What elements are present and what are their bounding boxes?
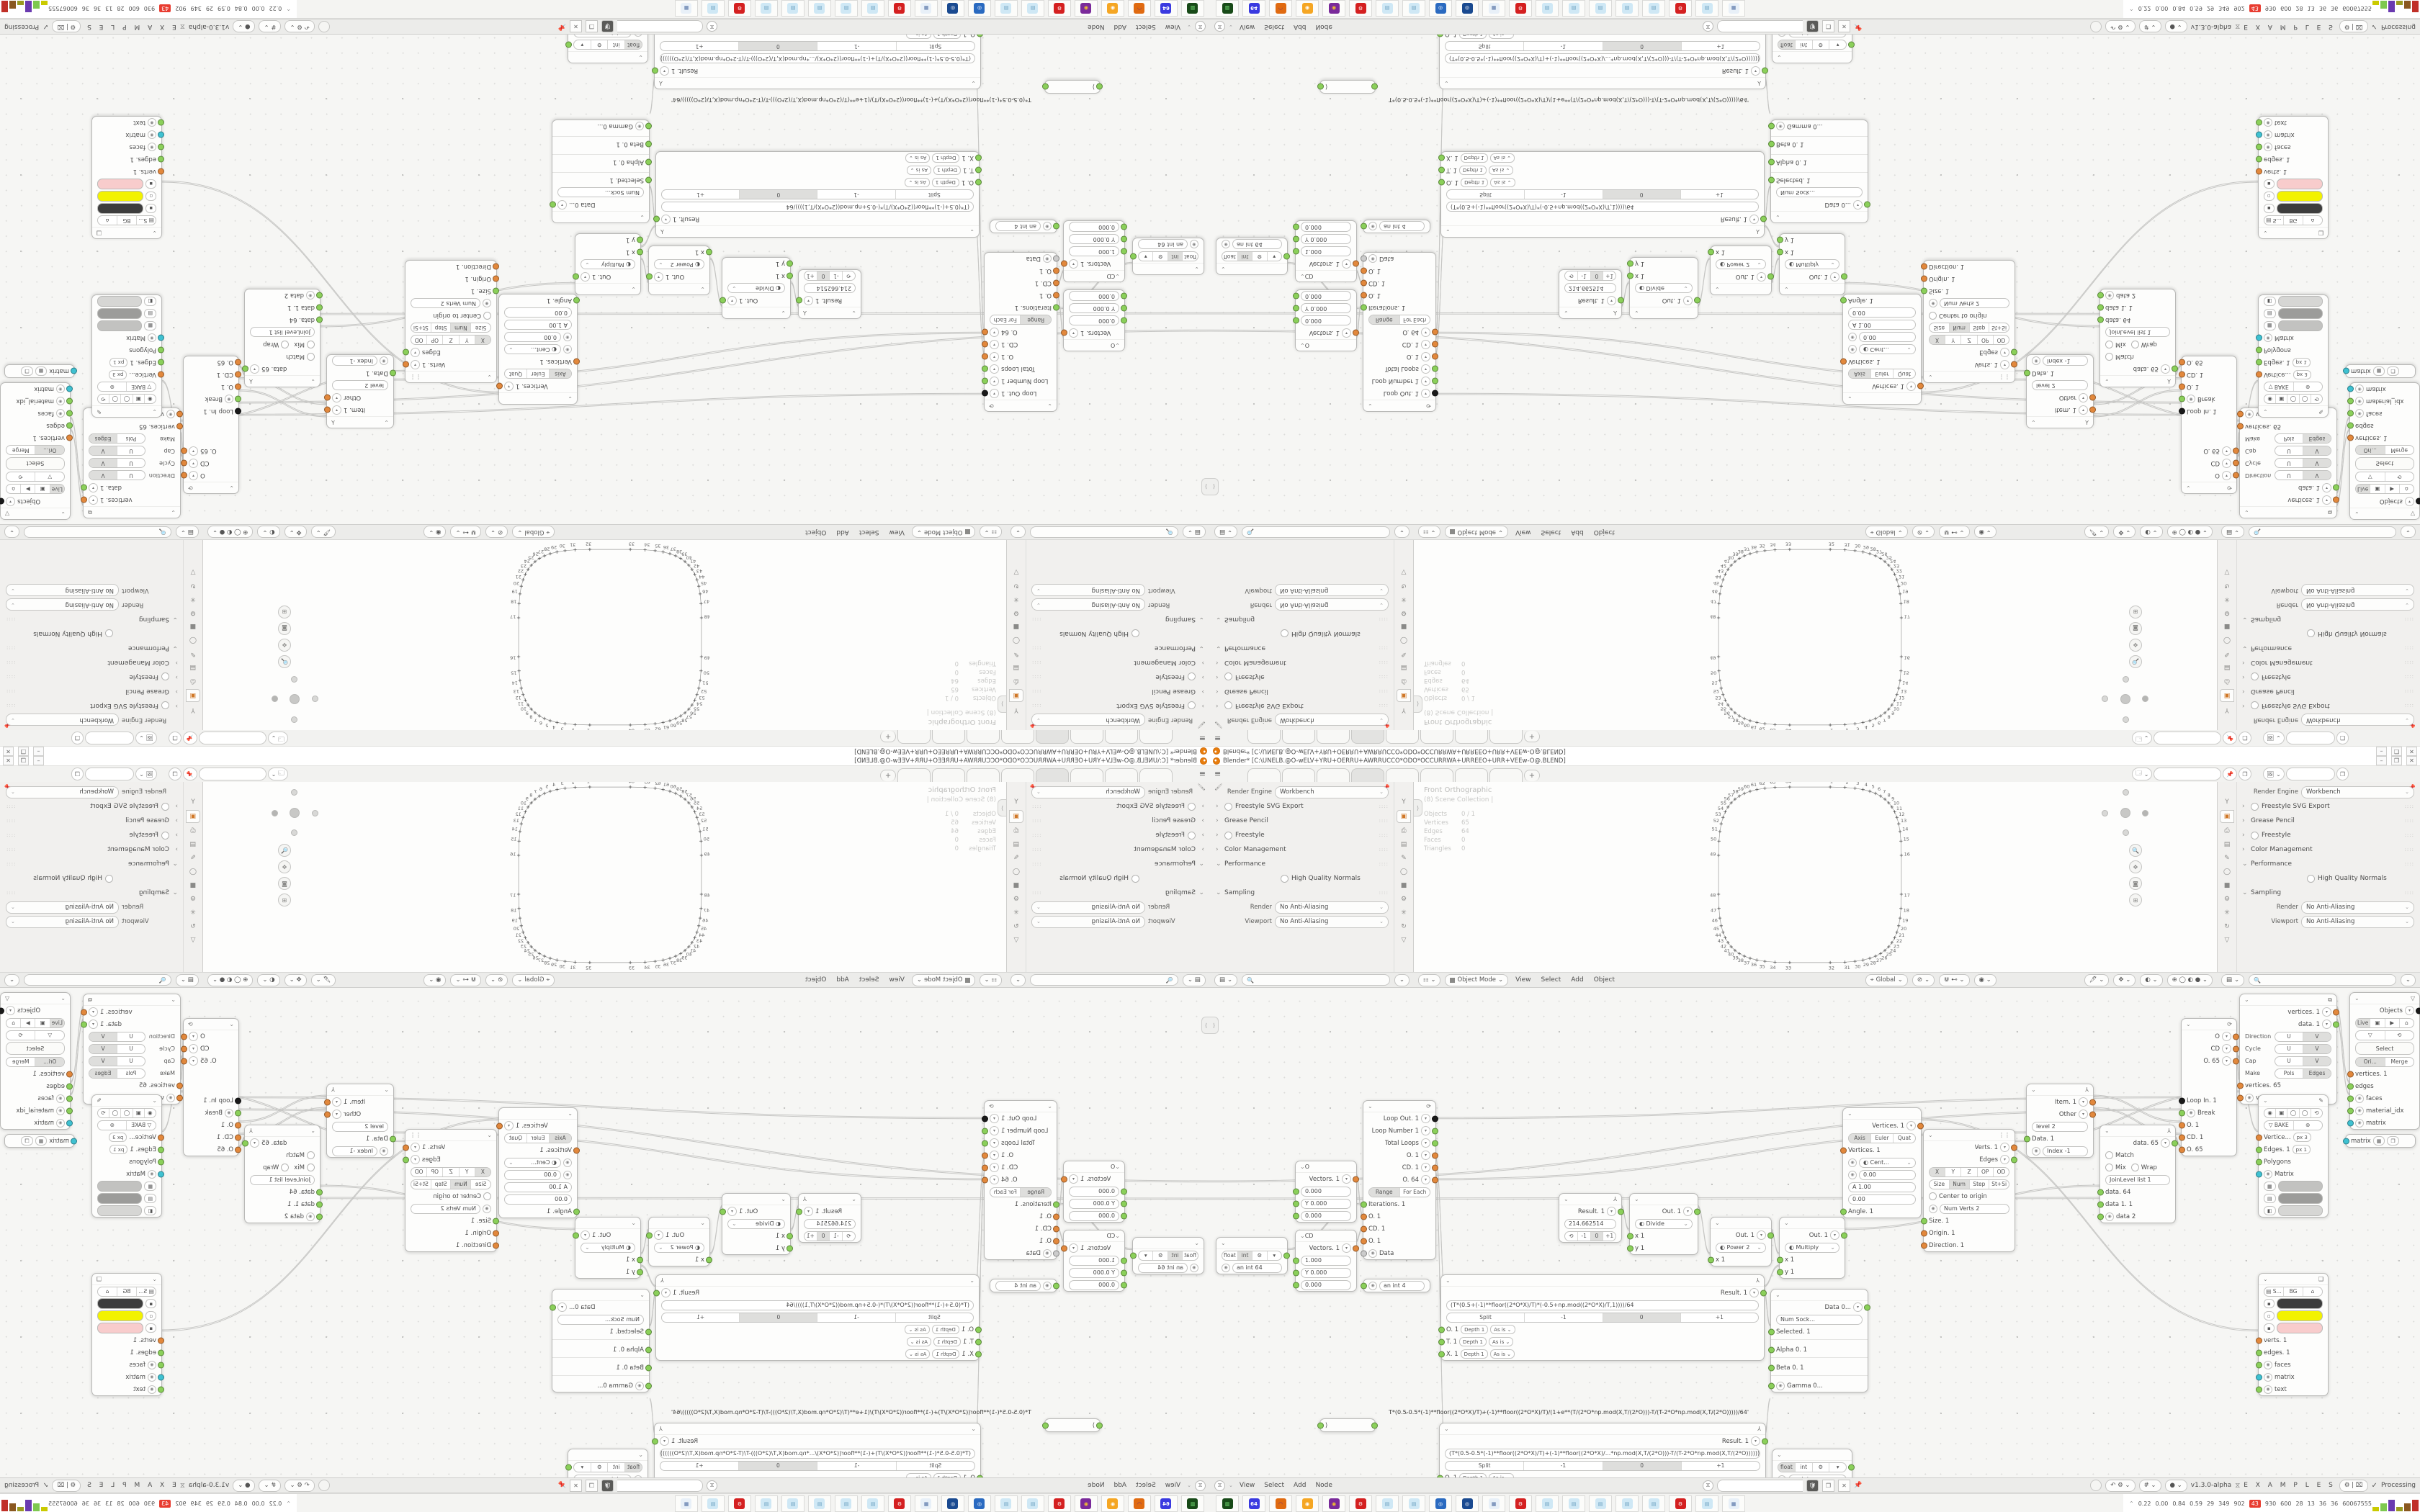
socket[interactable]	[1438, 1326, 1445, 1333]
node-math-power[interactable]: ⌄Out. 1▾◐ Power 2⌄x 1	[1710, 1217, 1772, 1266]
xray-toggle[interactable]: ◐ ⌄	[257, 974, 279, 986]
node-title-bar[interactable]: ⌄▽	[2350, 508, 2419, 519]
node-title-bar[interactable]: ⌄▽	[2350, 993, 2419, 1004]
expand-socket-button[interactable]: ◉	[2264, 1361, 2272, 1369]
socket[interactable]	[2233, 472, 2239, 479]
value-field[interactable]: 0.00	[1848, 1194, 1916, 1205]
swatch-button[interactable]: ▪	[2264, 204, 2275, 213]
section-chevron-icon[interactable]: ⌄	[172, 644, 178, 652]
socket[interactable]	[982, 329, 988, 336]
sub-field[interactable]: ❐	[21, 366, 32, 376]
socket-menu-button[interactable]: ▾	[1607, 1207, 1616, 1216]
socket[interactable]	[1762, 68, 1768, 74]
segmented-buttons[interactable]: Split-10+1	[661, 190, 974, 200]
socket[interactable]	[158, 132, 164, 138]
socket[interactable]	[1121, 224, 1127, 230]
socket-menu-button[interactable]: ▾	[1069, 328, 1078, 338]
section-chevron-icon[interactable]: ⌄	[1198, 644, 1204, 652]
expand-socket-button[interactable]: ◉	[1222, 1264, 1230, 1272]
socket-menu-button[interactable]: ▾	[1683, 1207, 1693, 1216]
socket[interactable]	[2097, 1213, 2104, 1220]
new-scene-button[interactable]: ❐	[2238, 732, 2251, 744]
workspace-tab[interactable]	[1282, 768, 1315, 783]
expand-socket-button[interactable]: ◉	[2105, 292, 2114, 300]
node-math-multiply[interactable]: ⌄Out. 1▾◐ Multiply⌄x 1y 1	[575, 233, 641, 295]
overlay-buttons[interactable]: ↶ ⚙ ⌄	[2105, 21, 2135, 33]
node-tree-name-field[interactable]	[1717, 21, 1803, 33]
render-engine-dropdown[interactable]: Workbench⌄	[1275, 786, 1389, 798]
socket[interactable]	[1353, 1245, 1359, 1251]
menu-object[interactable]: Object	[1591, 976, 1618, 984]
socket[interactable]	[1627, 1245, 1633, 1251]
expand-socket-button[interactable]: ◉	[483, 300, 491, 308]
checkbox[interactable]	[281, 341, 289, 348]
socket[interactable]	[324, 1099, 331, 1105]
socket[interactable]	[2347, 1120, 2354, 1126]
segmented-buttons[interactable]: PolsEdges	[89, 1068, 145, 1079]
socket[interactable]	[2333, 485, 2339, 491]
socket[interactable]	[1371, 1422, 1378, 1428]
expand-socket-button[interactable]: ◉	[635, 1382, 644, 1390]
taskbar-floppy-64-icon[interactable]: 64	[1155, 0, 1178, 17]
value-field[interactable]: Y 0.000	[1301, 235, 1351, 245]
socket-menu-button[interactable]: ▾	[504, 1121, 514, 1130]
value-field[interactable]: an int 4	[995, 1281, 1041, 1291]
segmented-buttons[interactable]: PolsEdges	[2275, 434, 2331, 444]
node-title-bar[interactable]: ⌄ CD	[1296, 270, 1356, 282]
section-chevron-icon[interactable]: ›	[1198, 803, 1204, 810]
socket[interactable]	[316, 1213, 323, 1220]
section-chevron-icon[interactable]: ›	[1216, 673, 1222, 680]
socket[interactable]	[1777, 237, 1783, 243]
menu-add[interactable]: Add	[1291, 23, 1309, 30]
value-field[interactable]: A 1.00	[1848, 320, 1916, 330]
expand-socket-button[interactable]: ◉	[2032, 357, 2040, 366]
node-vector-in-cd[interactable]: ⌄ CDVectors. 1▾1.000Y 0.0000.000	[1063, 1230, 1125, 1292]
node-title-bar[interactable]: ⌄⧉	[84, 994, 180, 1006]
socket[interactable]	[1042, 84, 1049, 90]
socket[interactable]	[1361, 1225, 1367, 1232]
node-viewer-2d[interactable]: ⌄❑▤ S...BG⌂▪▫▪verts. 1edges. 1◉faces◉mat…	[2258, 1273, 2329, 1396]
properties-tab-particles-icon[interactable]: ✳	[1397, 907, 1410, 919]
socket[interactable]	[1768, 1382, 1775, 1389]
properties-tab-scene-icon[interactable]: ✎	[1397, 852, 1410, 864]
copy-tree-button[interactable]: ❐	[1822, 1480, 1834, 1492]
section-checkbox[interactable]	[161, 673, 169, 681]
socket[interactable]	[1840, 1208, 1847, 1215]
section-chevron-icon[interactable]: ›	[2242, 688, 2248, 695]
node-title-bar[interactable]: ⌄	[1780, 283, 1845, 294]
socket[interactable]	[2347, 435, 2354, 441]
node-formula-node-2[interactable]: ⌄⅄Result. 1▾(T*(0.5-0.5*(-1)**floor((2*O…	[1439, 35, 1766, 89]
node-list-join[interactable]: ⌄⅄data. 65▾MatchMixWrapJoinLevel list 1d…	[2099, 289, 2176, 387]
expand-socket-button[interactable]: ◉	[148, 143, 156, 152]
sub-field[interactable]: px 3	[2293, 1133, 2311, 1142]
socket[interactable]	[1694, 1208, 1700, 1215]
node-vector-in-o[interactable]: ⌄ OVectors. 1▾0.000Y 0.0000.000	[1295, 1161, 1357, 1223]
socket[interactable]	[1361, 1282, 1367, 1289]
socket[interactable]	[158, 1337, 164, 1344]
workspace-tab[interactable]	[1070, 768, 1103, 783]
socket[interactable]	[2179, 408, 2185, 415]
socket-menu-button[interactable]: ▾	[660, 1436, 669, 1446]
socket[interactable]	[975, 155, 982, 161]
socket[interactable]	[493, 276, 499, 282]
taskbar-notepad-icon[interactable]: ▤	[1376, 0, 1399, 17]
taskbar-disc-icon[interactable]: ◎	[941, 1495, 964, 1512]
render-engine-dropdown[interactable]: Workbench⌄	[6, 714, 119, 726]
section-chevron-icon[interactable]: ›	[172, 673, 178, 680]
value-field[interactable]: 0.000	[1301, 222, 1351, 233]
menu-select[interactable]: Select	[1261, 1482, 1287, 1489]
node-title-bar[interactable]: ⌄❑	[2259, 1274, 2328, 1285]
taskbar-purple-app-icon[interactable]: ◉	[1075, 1495, 1098, 1512]
socket[interactable]	[646, 274, 653, 280]
value-field[interactable]: A 1.00	[504, 320, 572, 330]
segmented-buttons[interactable]: floatint⚙▾	[1138, 252, 1198, 262]
close-button[interactable]: ✕	[3, 747, 14, 756]
node-scalar-result[interactable]: ⌄⅄Result. 1▾214.662514⟲-10+1	[798, 1193, 861, 1243]
socket[interactable]	[2179, 1122, 2185, 1128]
operation-dropdown[interactable]: ◐ Cent...⌄	[1859, 345, 1916, 355]
node-viewer-draw[interactable]: ⌄✎◉▣◯◯⟲▽ BAKE⊚Vertice...px 3Edges. 1px 1…	[91, 294, 162, 418]
segmented-buttons[interactable]: Live▣▶⌂	[6, 1018, 65, 1028]
properties-tab-view-layer-icon[interactable]: ▤	[1397, 662, 1410, 673]
scene-selector[interactable]: 🗔⌄	[2132, 732, 2152, 744]
antialiasing-dropdown[interactable]: No Anti-Aliasing⌄	[2301, 901, 2414, 914]
swatch-button[interactable]: ◧	[144, 1206, 156, 1215]
restore-button[interactable]: ❐	[2391, 756, 2402, 765]
value-field[interactable]: Y 0.000	[1069, 1199, 1119, 1209]
view-layer-name-field[interactable]	[2286, 768, 2335, 780]
node-a-number-int-64[interactable]: ⌄floatint⚙▾◉an int 64	[1216, 238, 1288, 275]
properties-tab-physics-icon[interactable]: ↻	[1010, 580, 1023, 591]
socket[interactable]	[2256, 1337, 2262, 1344]
socket[interactable]	[2237, 423, 2244, 430]
socket[interactable]	[1361, 268, 1367, 274]
node-title-bar[interactable]: ⌄⟳	[1363, 400, 1435, 411]
socket-menu-button[interactable]: ▾	[1853, 1302, 1863, 1312]
socket[interactable]	[2256, 120, 2262, 126]
node-title-bar[interactable]: ⌄	[1711, 283, 1771, 294]
node-title-bar[interactable]: ⌄	[499, 1108, 577, 1120]
socket[interactable]	[66, 386, 73, 392]
segmented-buttons[interactable]: ⟲-10+1	[1564, 1231, 1616, 1241]
view-layer-selector[interactable]: 🖼⌄	[135, 732, 157, 744]
options-dropdown[interactable]: ⌄	[4, 974, 19, 986]
socket-menu-button[interactable]: ▾	[990, 328, 999, 337]
render-engine-dropdown[interactable]: Workbench⌄	[1031, 714, 1145, 726]
expand-socket-button[interactable]: ◉	[1043, 1249, 1052, 1258]
node-title-bar[interactable]: ⌄	[575, 1218, 640, 1229]
scene-name-field[interactable]	[2154, 768, 2221, 780]
socket[interactable]	[1708, 249, 1714, 256]
workspace-tab[interactable]	[1386, 768, 1419, 783]
options-dropdown[interactable]: ⌄	[1394, 974, 1410, 986]
workspace-tab[interactable]	[1317, 768, 1350, 783]
viewport-3d[interactable]: ⟩ Front Orthographic (8) Scene Collectio…	[1414, 782, 2217, 972]
menu-select[interactable]: Select	[1133, 1482, 1159, 1489]
unlink-tree-button[interactable]: ✕	[1838, 21, 1850, 33]
taskbar-calculator-icon[interactable]: ▦	[1482, 0, 1505, 17]
menu-view[interactable]: View	[1162, 1482, 1183, 1489]
expand-socket-button[interactable]: ◉	[380, 357, 388, 366]
snap-dropdown[interactable]: ⋓ ⊷ ⌄	[450, 526, 480, 539]
properties-tab-render-icon[interactable]: ▣	[2220, 689, 2234, 702]
section-chevron-icon[interactable]: ›	[1216, 803, 1222, 810]
section-chevron-icon[interactable]: ›	[1198, 659, 1204, 666]
properties-tab-render-icon[interactable]: ▣	[2220, 810, 2234, 823]
scene-selector[interactable]: 🗔⌄	[2132, 768, 2152, 780]
action-button[interactable]: Select	[2355, 457, 2414, 470]
workspace-tab[interactable]	[897, 729, 931, 744]
swatch-button[interactable]: ▪	[2264, 179, 2275, 189]
grid-buttons[interactable]: # ⌄	[259, 1480, 281, 1492]
socket[interactable]	[403, 1156, 409, 1163]
taskbar-notepad-icon[interactable]: ▤	[1695, 0, 1718, 17]
expand-socket-button[interactable]: ◉	[1776, 122, 1785, 131]
value-field[interactable]: an int 64	[1232, 1263, 1282, 1273]
move-view-icon[interactable]: ✥	[278, 639, 291, 652]
socket-menu-button[interactable]: ▾	[1342, 1174, 1351, 1184]
socket-menu-button[interactable]: ▾	[2000, 360, 2009, 369]
menu-add[interactable]: Add	[1568, 976, 1586, 984]
move-view-icon[interactable]: ✥	[2129, 639, 2142, 652]
sub-field[interactable]: Depth 1	[933, 1337, 961, 1346]
pin-scene-button[interactable]: 📌	[183, 732, 197, 744]
socket[interactable]	[2256, 1171, 2262, 1177]
socket[interactable]	[1840, 359, 1847, 365]
socket[interactable]	[1361, 292, 1367, 299]
socket[interactable]	[2089, 407, 2096, 413]
socket[interactable]	[645, 1346, 652, 1353]
sub-field[interactable]: As is ⌄	[907, 1337, 931, 1346]
socket[interactable]	[2256, 1374, 2262, 1380]
node-uv-connection[interactable]: ⌄⧉vertices. 1▾data. 1▾DirectionUVCycleUV…	[83, 408, 181, 518]
properties-tab-output-icon[interactable]: ⎙	[187, 675, 200, 687]
workspace-tab[interactable]	[1489, 729, 1523, 744]
socket[interactable]	[158, 372, 164, 378]
menu-icon[interactable]: ≡	[1199, 734, 1206, 743]
segmented-buttons[interactable]: PolsEdges	[2275, 1068, 2331, 1079]
node-tree-name-field[interactable]	[617, 21, 703, 33]
socket[interactable]	[316, 317, 323, 323]
section-chevron-icon[interactable]: ⌄	[2242, 644, 2248, 652]
color-swatch[interactable]	[2278, 296, 2323, 307]
taskbar-notepad-icon[interactable]: ▤	[995, 1495, 1018, 1512]
section-chevron-icon[interactable]: ›	[1198, 846, 1204, 853]
taskbar-red-gear-icon[interactable]: ⚙	[1669, 0, 1692, 17]
socket[interactable]	[1061, 1176, 1067, 1182]
section-chevron-icon[interactable]: ›	[1198, 673, 1204, 680]
socket[interactable]	[158, 1374, 164, 1380]
socket[interactable]	[1053, 305, 1059, 311]
socket[interactable]	[786, 1245, 793, 1251]
expand-socket-button[interactable]: ◉	[2264, 1385, 2272, 1394]
sverchok-node-editor[interactable]: ⟩ ⌄floatint⚙▾◉an int 64⌄ OVectors. 1▾0.0…	[0, 988, 1210, 1477]
workspace-tab[interactable]	[1036, 729, 1069, 744]
section-chevron-icon[interactable]: ›	[1216, 846, 1222, 853]
socket-menu-button[interactable]: ▾	[1421, 364, 1430, 374]
value-field[interactable]: 0.00	[504, 333, 561, 343]
value-field[interactable]: Num Verts 2	[1940, 1204, 2009, 1214]
node-title-bar[interactable]: ⌄	[1216, 263, 1287, 274]
navigation-gizmo[interactable]	[2102, 789, 2148, 835]
section-chevron-icon[interactable]: ⌄	[172, 889, 178, 896]
expand-socket-button[interactable]: ◉	[1043, 255, 1052, 264]
properties-tab-render-icon[interactable]: ▣	[186, 689, 200, 702]
value-field[interactable]: Index -1	[2043, 1146, 2088, 1156]
view-layer-name-field[interactable]	[2286, 732, 2335, 744]
node-viewer-2d[interactable]: ⌄❑▤ S...BG⌂▪▫▪verts. 1edges. 1◉faces◉mat…	[91, 1273, 162, 1396]
color-swatch[interactable]	[97, 308, 142, 319]
socket[interactable]	[2089, 395, 2096, 401]
socket[interactable]	[1768, 1364, 1775, 1371]
overlays-dropdown[interactable]: ✥ ⌄	[284, 526, 307, 539]
socket[interactable]	[1841, 274, 1847, 280]
node-loop-out-sockets[interactable]: ⌄Data 0...▾Num Sock...Selected. 1Alpha 0…	[1770, 120, 1868, 223]
expand-socket-button[interactable]: ◉	[1368, 255, 1377, 264]
checkbox[interactable]	[1929, 312, 1937, 320]
socket[interactable]	[1760, 1290, 1767, 1296]
segmented-buttons[interactable]: SizeNumStepSt+Si	[1929, 1179, 2009, 1189]
socket[interactable]	[66, 1120, 73, 1126]
socket[interactable]	[2011, 361, 2017, 368]
new-scene-button[interactable]: ❐	[169, 732, 181, 744]
menu-icon[interactable]: ≡	[1214, 769, 1221, 778]
value-field[interactable]: 0.00	[504, 1170, 561, 1180]
socket[interactable]	[637, 237, 643, 243]
sub-field[interactable]: Depth 1	[1461, 153, 1488, 163]
operation-dropdown[interactable]: ◐ Divide⌄	[1635, 284, 1693, 294]
expand-socket-button[interactable]: ◉	[2264, 334, 2272, 343]
node-formula-node-1[interactable]: ⌄⅄Result. 1▾(T*(0.5+(-1)**floor((2*O*X)/…	[655, 1274, 980, 1361]
camera-view-icon[interactable]: ◙	[278, 622, 291, 635]
node-list-join[interactable]: ⌄⅄data. 65▾MatchMixWrapJoinLevel list 1d…	[2099, 1125, 2176, 1223]
socket[interactable]	[1921, 276, 1927, 282]
properties-search-input[interactable]: 🔍	[1030, 974, 1178, 986]
antialiasing-dropdown[interactable]: No Anti-Aliasing⌄	[6, 585, 119, 597]
workspace-tab[interactable]	[1247, 729, 1281, 744]
socket-menu-button[interactable]: ▾	[990, 1138, 999, 1148]
node-rotate-node[interactable]: ⌄Vertices. 1▾AxisEulerQuatVertices. 1◉◐ …	[1842, 1107, 1922, 1218]
socket-menu-button[interactable]: ▾	[1421, 340, 1430, 349]
operation-dropdown[interactable]: ◐ Divide⌄	[1635, 1219, 1693, 1229]
taskbar-notepad-icon[interactable]: ▤	[1402, 1495, 1425, 1512]
processing-toggle[interactable]: Processing	[2381, 23, 2416, 30]
socket[interactable]	[1432, 366, 1438, 372]
socket[interactable]	[1437, 35, 1443, 37]
socket[interactable]	[2089, 1099, 2096, 1105]
high-quality-normals-checkbox[interactable]	[105, 875, 113, 883]
socket-menu-button[interactable]: ▾	[1342, 328, 1351, 338]
segmented-buttons[interactable]: ◉▣◯◯⟲	[97, 395, 156, 405]
expand-socket-button[interactable]: ◉	[306, 292, 315, 300]
segmented-buttons[interactable]: UV	[89, 1044, 145, 1054]
sub-field[interactable]: As is ⌄	[907, 166, 931, 175]
sub-field[interactable]: ▦	[2373, 1136, 2385, 1146]
new-scene-button[interactable]: ❐	[169, 768, 181, 780]
swatch-button[interactable]: ▪	[145, 1323, 156, 1333]
properties-tab-modifiers-icon[interactable]: ⚙	[1010, 607, 1023, 618]
sub-field[interactable]: As is ⌄	[1490, 1349, 1515, 1359]
socket[interactable]	[1121, 305, 1127, 312]
node-title-bar[interactable]: ⌄	[1843, 1108, 1921, 1120]
socket[interactable]	[706, 1256, 712, 1263]
section-chevron-icon[interactable]: ›	[172, 832, 178, 839]
socket[interactable]	[982, 1115, 988, 1122]
section-chevron-icon[interactable]: ⌄	[2242, 889, 2248, 896]
view-layer-selector[interactable]: 🖼⌄	[2263, 768, 2285, 780]
socket[interactable]	[975, 1338, 982, 1345]
overlays-dropdown[interactable]: ✥ ⌄	[2113, 526, 2136, 539]
socket[interactable]	[1432, 378, 1438, 384]
snap-dropdown[interactable]: ⋓ ⊷ ⌄	[450, 974, 480, 986]
menu-select[interactable]: Select	[1133, 23, 1159, 30]
sidebar-toggle-tab[interactable]: ⟩	[1201, 1017, 1210, 1034]
section-chevron-icon[interactable]: ›	[172, 659, 178, 666]
socket-menu-button[interactable]: ▾	[2000, 348, 2009, 357]
taskbar-red-gear-icon[interactable]: ⚙	[1669, 1495, 1692, 1512]
segmented-buttons[interactable]: AxisEulerQuat	[1848, 1133, 1916, 1143]
node-uv-connection[interactable]: ⌄⧉vertices. 1▾data. 1▾DirectionUVCycleUV…	[83, 994, 181, 1104]
taskbar-calculator-icon[interactable]: ▦	[1482, 1495, 1505, 1512]
navigation-gizmo[interactable]	[272, 789, 318, 835]
pin-icon[interactable]: 📌	[1854, 1482, 1862, 1489]
segmented-buttons[interactable]: RangeFor Each	[990, 1187, 1052, 1197]
color-swatch[interactable]	[2277, 179, 2323, 189]
node-title-bar[interactable]: ⌄	[649, 1218, 709, 1229]
segmented-buttons[interactable]: SizeNumStepSt+Si	[1929, 323, 2009, 333]
expand-socket-button[interactable]: ◉	[2105, 1212, 2114, 1221]
node-loop-in[interactable]: ⌄⟳Loop Out. 1▾Loop Number 1▾Total Loops▾…	[1363, 1100, 1436, 1260]
section-chevron-icon[interactable]: ⌄	[1198, 616, 1204, 623]
gizmo-dropdown[interactable]: 🖊 ⌄	[2084, 526, 2110, 539]
taskbar-notepad-icon[interactable]: ▤	[808, 0, 831, 17]
node-collapsed-node[interactable]: ⟩	[1044, 1418, 1101, 1432]
xray-toggle[interactable]: ◐ ⌄	[2140, 526, 2162, 539]
checkbox[interactable]	[483, 1192, 491, 1200]
node-vector-in-cd[interactable]: ⌄ CDVectors. 1▾1.000Y 0.0000.000	[1295, 1230, 1357, 1292]
properties-tab-particles-icon[interactable]: ✳	[2220, 907, 2233, 919]
node-title-bar[interactable]: ⌄❑	[2259, 227, 2328, 238]
node-title-bar[interactable]: ⌄⅄	[2027, 416, 2093, 428]
taskbar-red-gear-icon[interactable]: ⚙	[1349, 1495, 1372, 1512]
processing-toggle[interactable]: Processing	[4, 23, 39, 30]
node-mesh-viewer[interactable]: ⌄▽Objects▾Live▣▶⌂▽⟲SelectOri...Mergevert…	[0, 382, 71, 520]
zoom-icon[interactable]: 🔍	[278, 844, 291, 857]
socket[interactable]	[1353, 330, 1359, 336]
antialiasing-dropdown[interactable]: No Anti-Aliasing⌄	[2301, 585, 2414, 597]
properties-tab-tool-icon[interactable]: Y	[187, 796, 200, 808]
node-a-number-float[interactable]: ⌄floatint⚙▾◉an int	[568, 1449, 648, 1477]
socket[interactable]	[66, 398, 73, 405]
properties-tab-output-icon[interactable]: ⎙	[2220, 675, 2233, 687]
segmented-buttons[interactable]: RangeFor Each	[1368, 315, 1430, 325]
socket[interactable]	[176, 1082, 183, 1089]
socket[interactable]	[1293, 1212, 1299, 1219]
section-chevron-icon[interactable]: ⌄	[1216, 644, 1222, 652]
socket[interactable]	[316, 305, 323, 311]
menu-object[interactable]: Object	[802, 976, 829, 984]
socket-menu-button[interactable]: ▾	[2079, 405, 2088, 415]
snap-toggle-icon[interactable]	[318, 1480, 330, 1491]
swatch-button[interactable]: ▦	[144, 321, 156, 330]
expand-socket-button[interactable]: ◉	[56, 385, 65, 394]
socket[interactable]	[1921, 1230, 1927, 1236]
shading-mode-buttons[interactable]: ⊕ ◯ ◐ ● ⌄	[207, 974, 253, 986]
sidebar-toggle-tab[interactable]: ⟩	[1201, 478, 1210, 495]
